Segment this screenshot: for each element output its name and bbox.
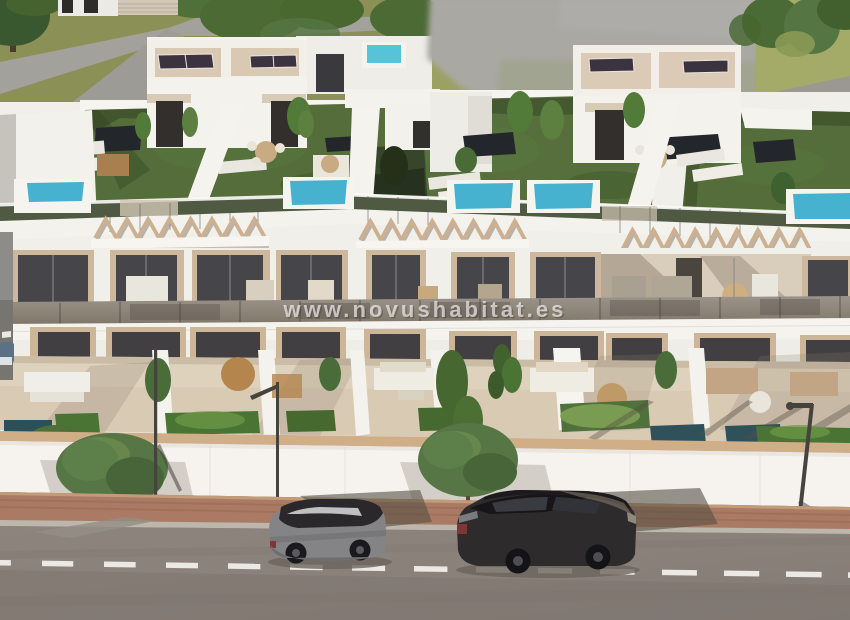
svg-text:www.novushabitat.es: www.novushabitat.es: [282, 297, 566, 322]
